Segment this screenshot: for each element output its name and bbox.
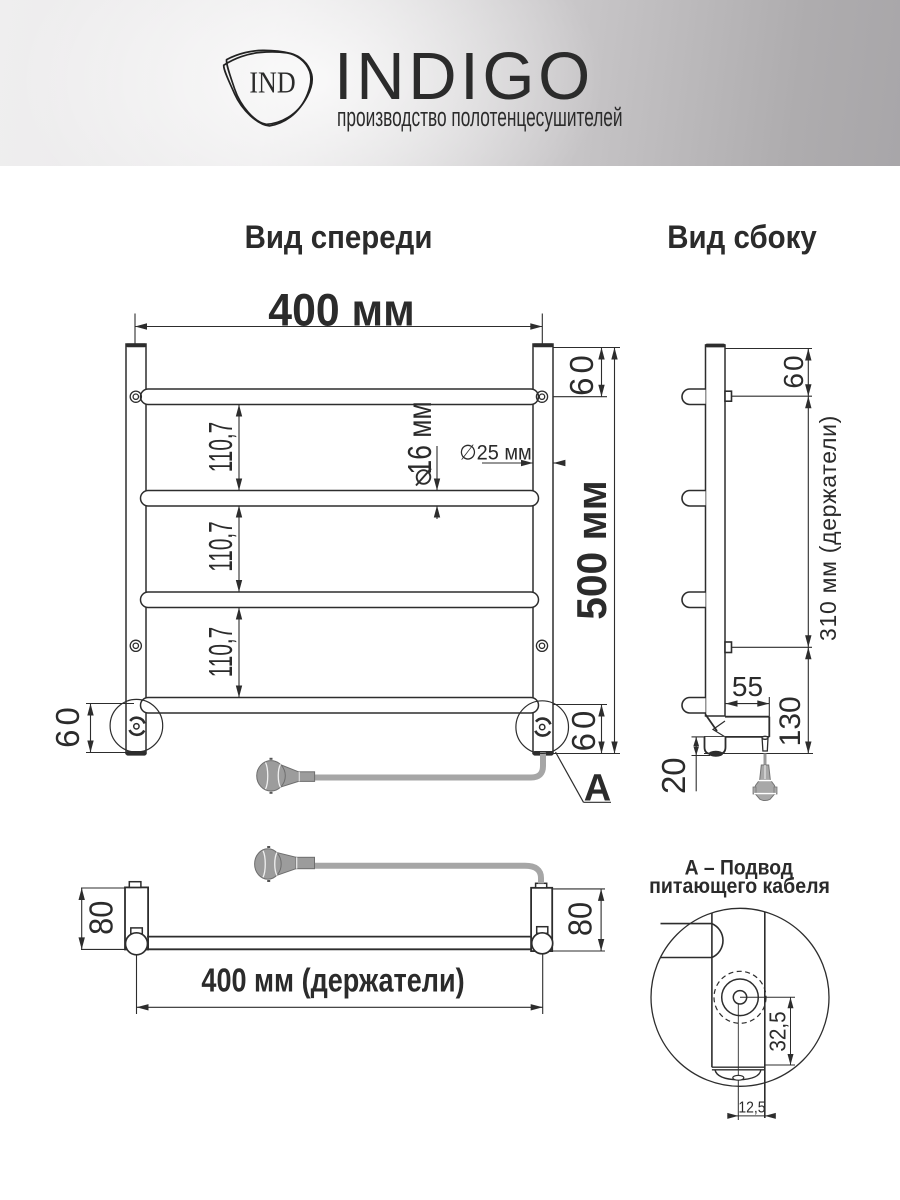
svg-text:110,7: 110,7 xyxy=(202,422,239,472)
svg-text:IND: IND xyxy=(249,65,295,100)
svg-text:∅25 мм: ∅25 мм xyxy=(459,441,532,465)
svg-text:60: 60 xyxy=(563,351,600,396)
svg-text:производство полотенцесушителе: производство полотенцесушителей xyxy=(337,102,623,131)
svg-text:130: 130 xyxy=(774,696,807,746)
svg-text:20: 20 xyxy=(655,757,692,794)
svg-text:400 мм (держатели): 400 мм (держатели) xyxy=(201,963,464,999)
svg-text:80: 80 xyxy=(561,902,598,936)
svg-text:60: 60 xyxy=(49,703,86,748)
svg-text:400 мм: 400 мм xyxy=(268,286,414,336)
svg-text:500 мм: 500 мм xyxy=(568,480,615,620)
svg-text:55: 55 xyxy=(732,671,763,702)
svg-text:питающего кабеля: питающего кабеля xyxy=(649,875,830,898)
svg-text:32,5: 32,5 xyxy=(764,1011,790,1051)
svg-text:А: А xyxy=(584,768,611,810)
svg-text:310 мм (держатели): 310 мм (держатели) xyxy=(815,415,841,641)
svg-text:110,7: 110,7 xyxy=(202,627,239,677)
svg-text:16 мм: 16 мм xyxy=(402,402,438,475)
svg-text:12,5: 12,5 xyxy=(738,1100,765,1117)
svg-text:60: 60 xyxy=(565,707,602,752)
svg-text:Вид сбоку: Вид сбоку xyxy=(667,219,816,255)
svg-text:110,7: 110,7 xyxy=(202,521,239,571)
svg-text:80: 80 xyxy=(82,901,119,935)
svg-text:Вид спереди: Вид спереди xyxy=(245,219,433,255)
svg-text:60: 60 xyxy=(778,353,809,388)
